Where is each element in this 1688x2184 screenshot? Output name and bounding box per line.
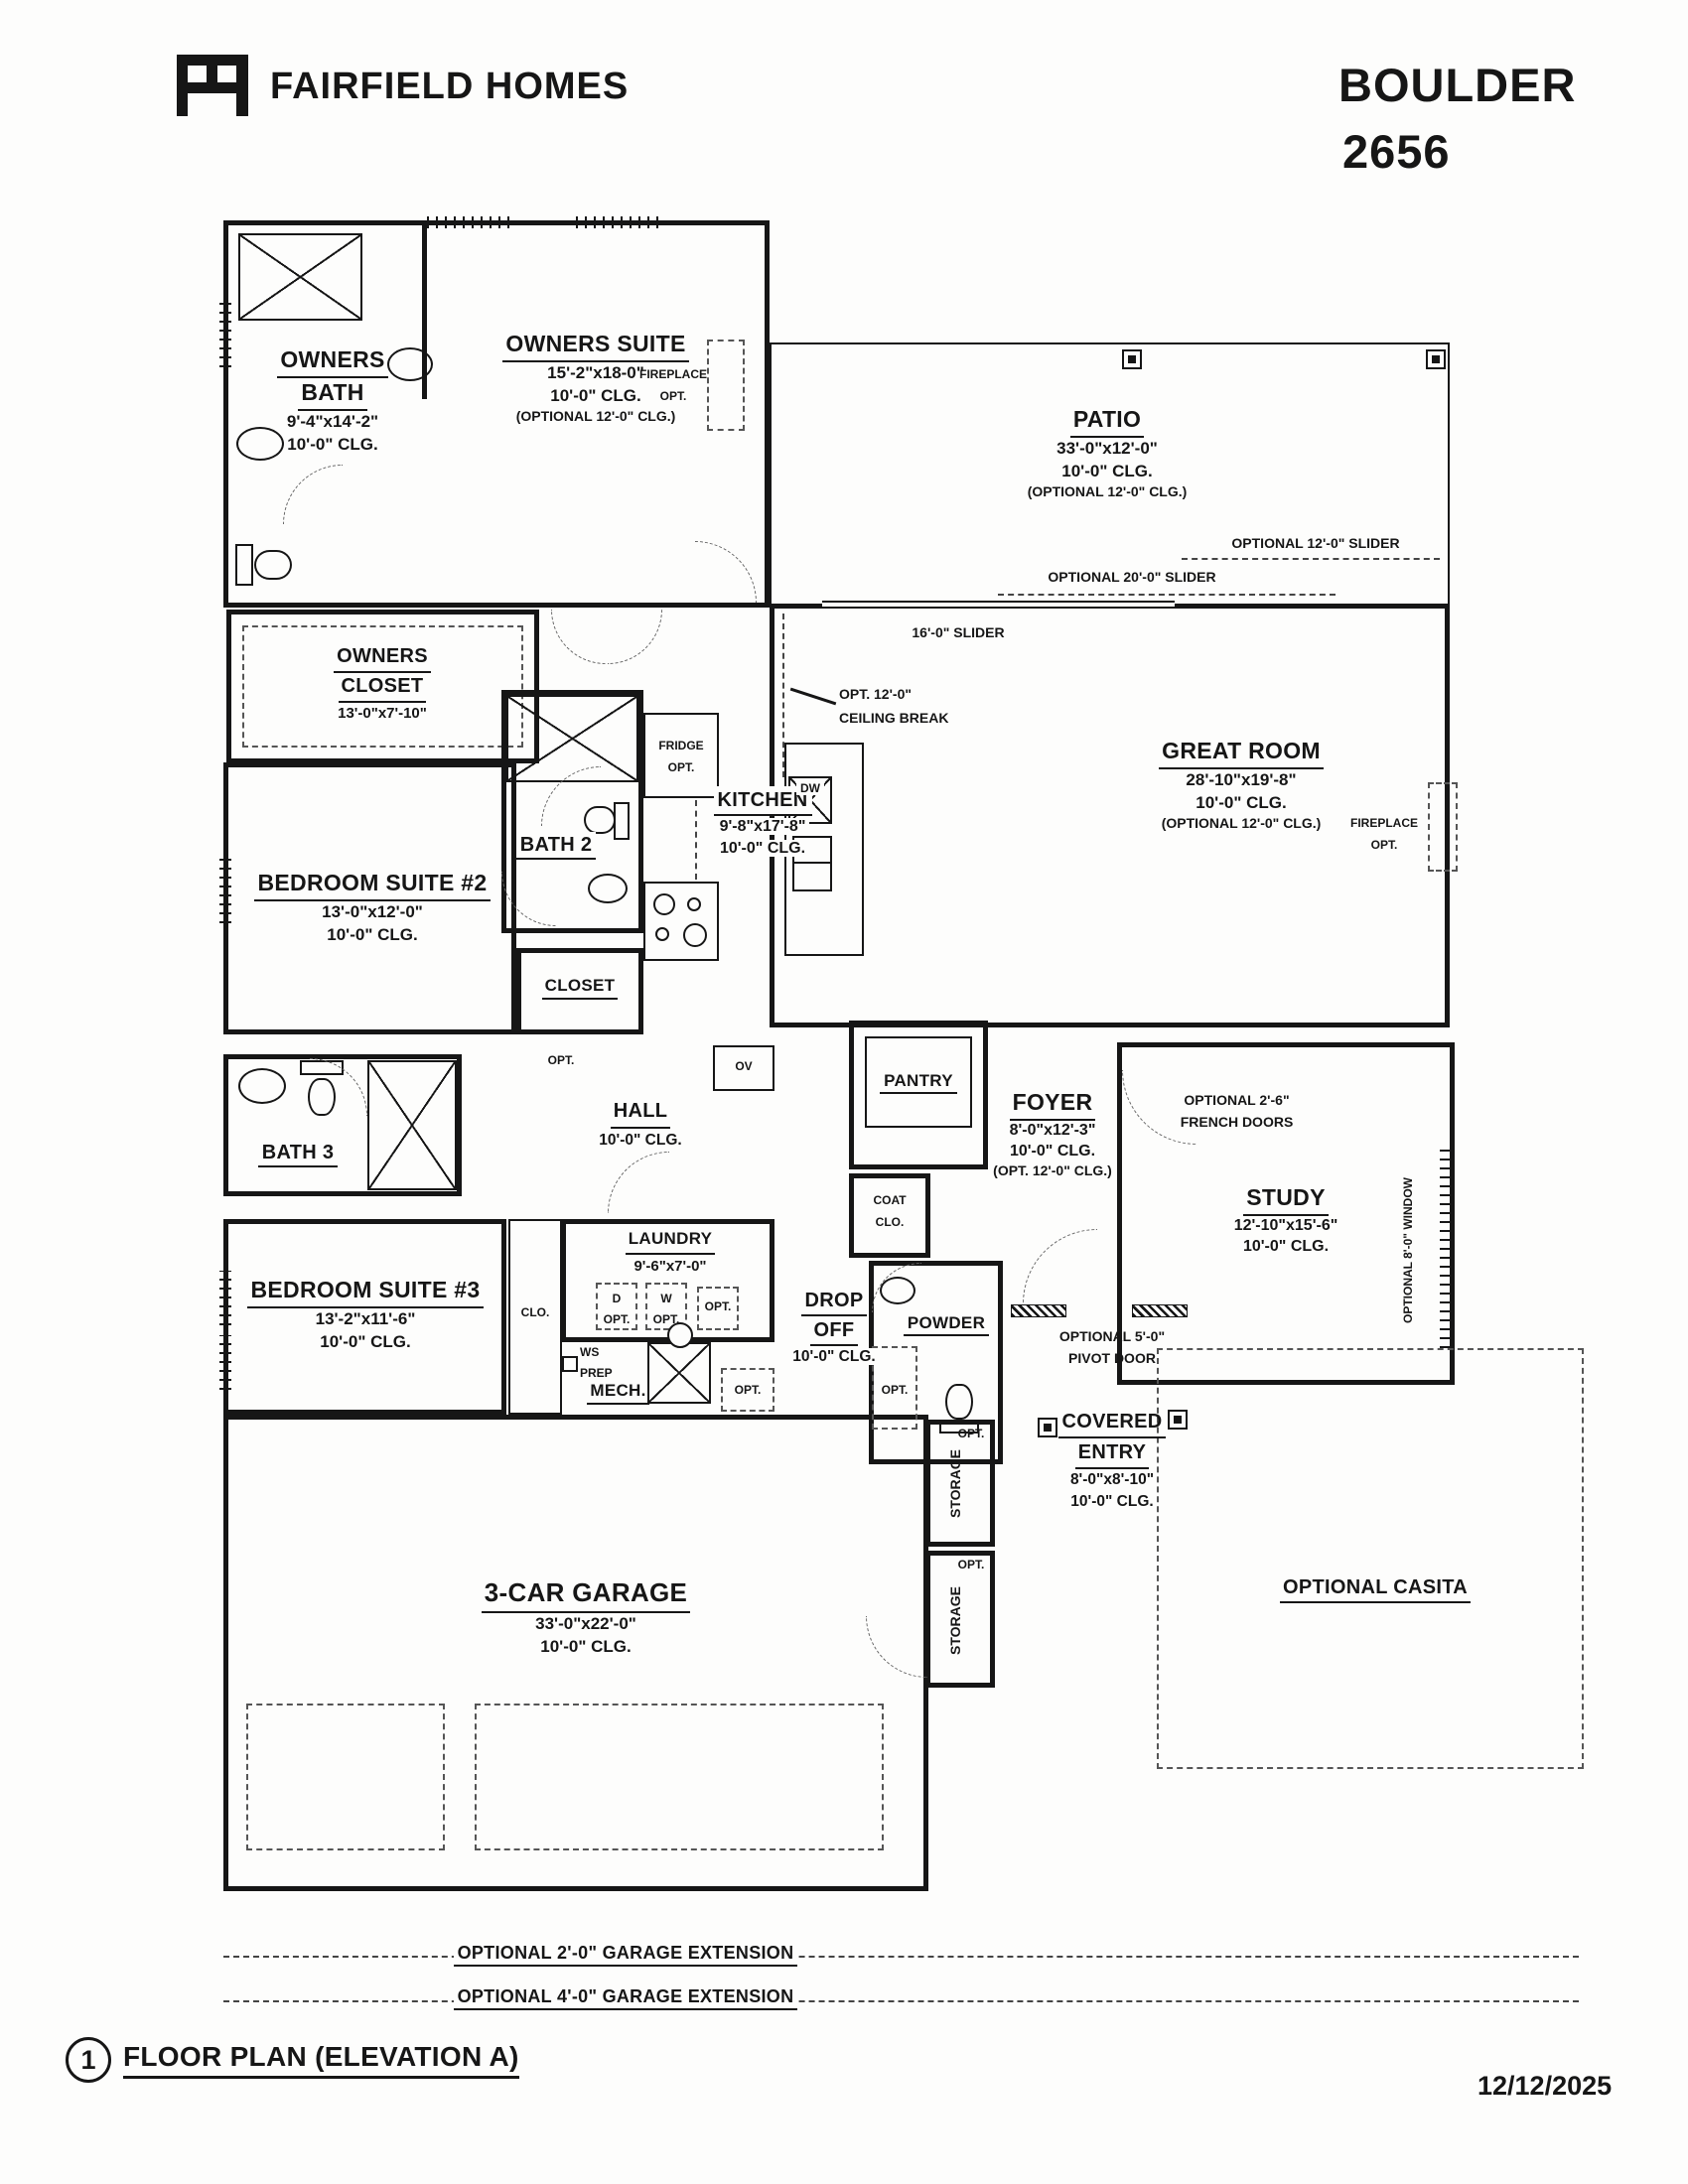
room-option: (OPTIONAL 12'-0" CLG.) — [1162, 815, 1322, 831]
label-storage2: STORAGE — [945, 1567, 965, 1676]
burner-icon — [653, 893, 675, 915]
room-ceiling: 10'-0" CLG. — [287, 435, 377, 454]
model-number: 2656 — [1342, 124, 1451, 179]
label-16-slider: 16'-0" SLIDER — [879, 623, 1038, 644]
label-storage1-opt: OPT. — [951, 1424, 991, 1444]
garage-extension-label: OPTIONAL 4'-0" GARAGE EXTENSION — [454, 1985, 798, 2010]
room-name: COVERED — [1058, 1408, 1165, 1438]
pivot-door-label: PIVOT DOOR — [1068, 1350, 1156, 1366]
outline-optional-casita — [1157, 1348, 1584, 1769]
label-hall: HALL 10'-0" CLG. — [576, 1096, 705, 1153]
room-name: DROP — [801, 1287, 868, 1316]
label-owners-bath: OWNERS BATH 9'-4"x14'-2" 10'-0" CLG. — [248, 345, 417, 456]
toilet-icon — [235, 544, 253, 586]
label-mech: MECH. — [571, 1380, 665, 1405]
opt-label: OPT. — [958, 1558, 985, 1571]
room-dims: 28'-10"x19'-8" — [1186, 770, 1296, 789]
label-dryer: D OPT. — [596, 1289, 637, 1330]
door-arc — [608, 610, 662, 664]
optional-20-slider-line — [998, 594, 1336, 596]
opt-label: OPT. — [735, 1383, 762, 1397]
column-marker — [1122, 349, 1142, 369]
entry-wall-hatch — [1011, 1304, 1066, 1317]
burner-icon — [687, 897, 701, 911]
label-optional-window: OPTIONAL 8'-0" WINDOW — [1398, 1142, 1418, 1360]
garage-door-outline — [475, 1704, 884, 1850]
room-dims: 9'-4"x14'-2" — [287, 412, 378, 431]
label-closet2: CLOSET — [521, 975, 638, 1000]
fireplace-label: OPT. — [1371, 838, 1398, 852]
door-arc — [608, 1152, 669, 1213]
entry-wall-hatch — [1132, 1304, 1188, 1317]
window-hatch — [219, 298, 231, 367]
fireplace-label: FIREPLACE — [639, 367, 707, 381]
room-name: PANTRY — [880, 1070, 957, 1094]
room-name: 3-CAR GARAGE — [482, 1576, 690, 1613]
room-name: BATH — [298, 378, 366, 411]
label-bedroom2: BEDROOM SUITE #2 13'-0"x12'-0" 10'-0" CL… — [233, 869, 511, 946]
french-doors-label: OPTIONAL 2'-6" — [1184, 1092, 1289, 1108]
ceiling-break-label: OPT. 12'-0" — [839, 686, 912, 702]
ws-prep-label: PREP — [580, 1366, 613, 1380]
room-dims: 8'-0"x8'-10" — [1070, 1471, 1154, 1488]
slider-annotation: 16'-0" SLIDER — [912, 624, 1004, 640]
room-dims: 13'-2"x11'-6" — [316, 1309, 416, 1328]
room-option: (OPTIONAL 12'-0" CLG.) — [516, 408, 676, 424]
label-fridge-opt: FRIDGE OPT. — [645, 735, 717, 777]
room-name: OWNERS — [334, 643, 431, 673]
label-closet3: CLO. — [504, 1302, 566, 1323]
window-hatch — [219, 854, 231, 923]
burner-icon — [683, 923, 707, 947]
room-dims: 9'-8"x17'-8" — [716, 818, 810, 835]
sheet-number: 1 — [80, 2045, 95, 2075]
label-opt-hall-cabinet: OPT. — [516, 1050, 606, 1071]
room-name: POWDER — [904, 1312, 989, 1336]
label-opt-mech: OPT. — [721, 1380, 774, 1401]
dryer-label: D — [613, 1292, 622, 1305]
room-ceiling: 10'-0" CLG. — [550, 386, 640, 405]
label-bath2: BATH 2 — [496, 832, 616, 860]
sheet-number-bubble: 1 — [66, 2037, 111, 2083]
label-opt-drop-off: OPT. — [872, 1380, 917, 1401]
optional-window-label: OPTIONAL 8'-0" WINDOW — [1401, 1178, 1415, 1324]
slider-annotation: OPTIONAL 12'-0" SLIDER — [1227, 535, 1403, 551]
opt-label: OPT. — [653, 1312, 680, 1326]
room-dims: 12'-10"x15'-6" — [1234, 1217, 1338, 1234]
cooktop-box — [643, 882, 719, 961]
label-french-doors: OPTIONAL 2'-6" FRENCH DOORS — [1150, 1090, 1324, 1135]
brand-name: FAIRFIELD HOMES — [270, 66, 629, 108]
slider-16-line — [822, 601, 1175, 603]
room-ceiling: 10'-0" CLG. — [320, 1332, 410, 1351]
room-ceiling: 10'-0" CLG. — [599, 1132, 681, 1149]
optional-window-hatch — [1440, 1150, 1452, 1348]
sink-icon — [588, 874, 628, 903]
label-great-room: GREAT ROOM 28'-10"x19'-8" 10'-0" CLG. (O… — [1102, 737, 1380, 835]
label-coat-closet: COAT CLO. — [852, 1189, 927, 1232]
label-foyer: FOYER 8'-0"x12'-3" 10'-0" CLG. (OPT. 12'… — [953, 1088, 1152, 1182]
model-name: BOULDER — [1338, 58, 1576, 112]
garage-extension-label: OPTIONAL 2'-0" GARAGE EXTENSION — [454, 1942, 798, 1967]
room-name: OFF — [810, 1316, 859, 1346]
room-name: HALL — [611, 1096, 671, 1129]
plan-date: 12/12/2025 — [1477, 2071, 1612, 2102]
door-arc — [1023, 1229, 1097, 1303]
label-fireplace-opt: FIREPLACE OPT. — [1345, 812, 1423, 855]
kitchen-sink-divider — [794, 862, 830, 864]
label-bath3: BATH 3 — [228, 1140, 367, 1167]
room-name: BATH 3 — [258, 1140, 339, 1167]
label-owners-closet: OWNERS CLOSET 13'-0"x7'-10" — [298, 643, 467, 725]
ceiling-break-label: CEILING BREAK — [839, 710, 948, 726]
room-ceiling: 10'-0" CLG. — [1010, 1143, 1095, 1160]
room-name: FOYER — [1010, 1088, 1096, 1121]
label-study: STUDY 12'-10"x15'-6" 10'-0" CLG. — [1177, 1183, 1395, 1257]
room-ceiling: 10'-0" CLG. — [1070, 1493, 1153, 1510]
room-option: (OPTIONAL 12'-0" CLG.) — [1028, 483, 1188, 499]
label-optional-casita: OPTIONAL CASITA — [1261, 1574, 1489, 1603]
label-fireplace-opt: FIREPLACE OPT. — [637, 363, 709, 406]
door-arc — [551, 610, 606, 664]
room-dims: 33'-0"x22'-0" — [535, 1614, 636, 1633]
room-name: STORAGE — [947, 1587, 963, 1656]
room-ceiling: 10'-0" CLG. — [1196, 793, 1286, 812]
fridge-label: FRIDGE — [658, 739, 703, 752]
slider-16-line — [822, 607, 1175, 609]
pivot-door-label: OPTIONAL 5'-0" — [1059, 1328, 1165, 1344]
toilet-icon — [945, 1384, 973, 1420]
french-doors-label: FRENCH DOORS — [1181, 1114, 1294, 1130]
room-name: BEDROOM SUITE #3 — [247, 1276, 483, 1308]
room-ceiling: 10'-0" CLG. — [540, 1637, 631, 1656]
opt-label: OPT. — [604, 1312, 631, 1326]
garage-extension-line-2ft — [223, 1956, 1579, 1958]
shower-icon — [506, 695, 638, 782]
toilet-icon — [254, 550, 292, 580]
room-dims: 8'-0"x12'-3" — [1010, 1122, 1096, 1139]
room-ceiling: 10'-0" CLG. — [1061, 462, 1152, 480]
window-hatch — [576, 216, 660, 228]
room-name: OPTIONAL CASITA — [1280, 1574, 1471, 1603]
sheet-title: FLOOR PLAN (ELEVATION A) — [123, 2041, 519, 2079]
opt-label: OPT. — [958, 1427, 985, 1440]
opt-label: OPT. — [705, 1299, 732, 1313]
room-name: CLO. — [876, 1215, 905, 1229]
room-name: COAT — [873, 1193, 906, 1207]
room-dims: 13'-0"x12'-0" — [322, 902, 423, 921]
room-ceiling: 10'-0" CLG. — [716, 840, 809, 857]
room-ceiling: 10'-0" CLG. — [788, 1348, 879, 1365]
room-dims: 13'-0"x7'-10" — [338, 705, 427, 722]
toilet-icon — [614, 802, 630, 840]
room-dims: 33'-0"x12'-0" — [1056, 439, 1158, 458]
label-powder: POWDER — [892, 1312, 1001, 1336]
garage-door-outline — [246, 1704, 445, 1850]
label-laundry-sink-opt: OPT. — [697, 1297, 739, 1317]
label-garage-extension-2ft: OPTIONAL 2'-0" GARAGE EXTENSION — [437, 1942, 814, 1967]
burner-icon — [655, 927, 669, 941]
fireplace-label: FIREPLACE — [1350, 816, 1418, 830]
room-name: CLOSET — [542, 975, 619, 1000]
label-ws-prep: WS PREP — [580, 1342, 635, 1384]
room-name: OWNERS SUITE — [502, 330, 688, 362]
label-patio: PATIO 33'-0"x12'-0" 10'-0" CLG. (OPTIONA… — [978, 405, 1236, 503]
room-name: CLOSET — [339, 673, 427, 703]
label-washer: W OPT. — [645, 1289, 687, 1330]
label-pivot-door: OPTIONAL 5'-0" PIVOT DOOR — [1023, 1326, 1201, 1371]
room-name: PATIO — [1070, 405, 1144, 438]
oven-label: OV — [735, 1059, 752, 1073]
room-option: (OPT. 12'-0" CLG.) — [993, 1162, 1112, 1178]
room-name: OWNERS — [277, 345, 387, 378]
label-storage2-opt: OPT. — [951, 1555, 991, 1575]
slider-annotation: OPTIONAL 20'-0" SLIDER — [1044, 569, 1219, 585]
room-name: ENTRY — [1075, 1438, 1150, 1469]
room-name: GREAT ROOM — [1159, 737, 1324, 769]
washer-label: W — [660, 1292, 671, 1305]
label-bedroom3: BEDROOM SUITE #3 13'-2"x11'-6" 10'-0" CL… — [226, 1276, 504, 1353]
fireplace-label: OPT. — [660, 389, 687, 403]
room-name: MECH. — [587, 1380, 648, 1405]
fridge-label: OPT. — [668, 760, 695, 774]
shower-icon — [238, 233, 362, 321]
ws-prep-box — [562, 1356, 578, 1372]
room-dims: 15'-2"x18-0" — [547, 363, 644, 382]
room-name: STUDY — [1243, 1183, 1328, 1216]
opt-label: OPT. — [548, 1053, 575, 1067]
column-marker — [1426, 349, 1446, 369]
logo-bar — [177, 55, 248, 66]
room-name: BATH 2 — [516, 832, 597, 860]
fireplace-optional-box — [1428, 782, 1458, 872]
label-ov: OV — [713, 1056, 774, 1077]
room-name: LAUNDRY — [626, 1227, 716, 1255]
room-ceiling: 10'-0" CLG. — [1243, 1238, 1329, 1255]
brand-logo — [177, 55, 248, 116]
garage-extension-line-4ft — [223, 2000, 1579, 2002]
opt-label: OPT. — [882, 1383, 909, 1397]
sink-icon — [238, 1068, 286, 1104]
label-optional-20-slider: OPTIONAL 20'-0" SLIDER — [1033, 568, 1231, 589]
label-storage1: STORAGE — [945, 1430, 965, 1539]
room-name: CLO. — [517, 1305, 554, 1319]
optional-12-slider-line — [1182, 558, 1440, 560]
label-dw: DW — [788, 778, 832, 799]
room-name: STORAGE — [947, 1450, 963, 1519]
room-ceiling: 10'-0" CLG. — [327, 925, 417, 944]
room-dims: 9'-6"x7'-0" — [633, 1258, 706, 1275]
label-drop-off: DROP OFF 10'-0" CLG. — [779, 1287, 889, 1368]
logo-bar — [177, 82, 248, 93]
label-optional-12-slider: OPTIONAL 12'-0" SLIDER — [1216, 534, 1415, 555]
label-laundry: LAUNDRY 9'-6"x7'-0" — [591, 1227, 750, 1278]
ws-prep-label: WS — [580, 1345, 599, 1359]
dishwasher-label: DW — [796, 781, 824, 795]
label-ceiling-break: OPT. 12'-0" CEILING BREAK — [839, 683, 968, 731]
window-hatch — [427, 216, 511, 228]
label-garage-extension-4ft: OPTIONAL 4'-0" GARAGE EXTENSION — [437, 1985, 814, 2010]
room-name: BEDROOM SUITE #2 — [254, 869, 490, 901]
shower-icon — [367, 1060, 457, 1190]
label-garage: 3-CAR GARAGE 33'-0"x22'-0" 10'-0" CLG. — [427, 1576, 745, 1658]
label-covered-entry: COVERED ENTRY 8'-0"x8'-10" 10'-0" CLG. — [1023, 1408, 1201, 1514]
